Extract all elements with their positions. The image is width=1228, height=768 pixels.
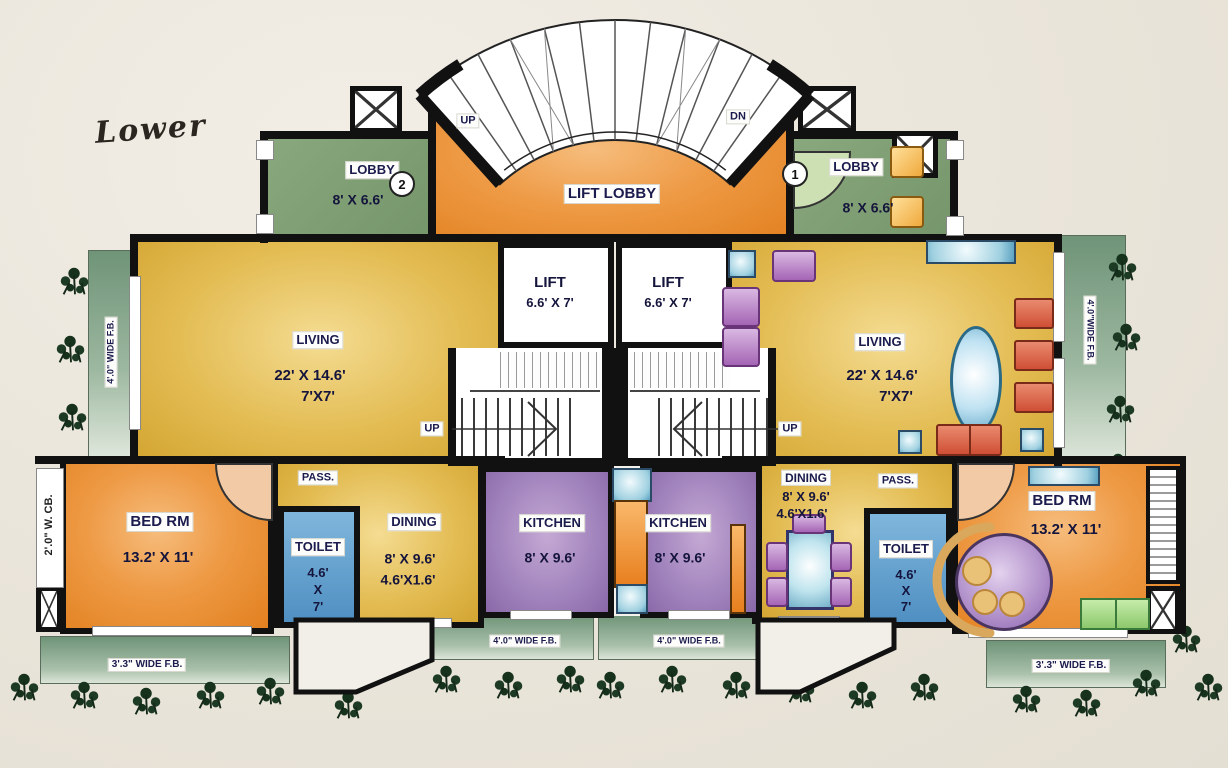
chair [722, 327, 760, 367]
window [946, 140, 964, 160]
plant-icon [782, 670, 820, 708]
side-table [1020, 428, 1044, 452]
bed-pillow [999, 591, 1025, 617]
dining-chair [766, 542, 788, 572]
plant-icon [592, 666, 630, 704]
dining-chair [830, 577, 852, 607]
floor-plan: Lower [0, 0, 1228, 768]
plant-icon [54, 398, 92, 436]
label-kitchen-left: KITCHEN [519, 514, 585, 532]
chair [1014, 340, 1054, 371]
dims-bed-right: 13.2' X 11' [1031, 522, 1102, 539]
dims-toilet-right-x: X [902, 584, 911, 598]
wall [722, 456, 1185, 464]
kitchen-sink [612, 468, 652, 502]
label-up-top: UP [456, 113, 479, 128]
dims-lift-right: 6.6' X 7' [644, 296, 691, 310]
plant-icon [1008, 680, 1046, 718]
chair [1014, 382, 1054, 413]
wall [35, 456, 505, 464]
label-up-mid-right: UP [778, 421, 801, 436]
dresser [1028, 466, 1100, 486]
dims-living-left: 22' X 14.6' [274, 368, 345, 385]
plant-icon [52, 330, 90, 368]
stair-flight-upper-right [626, 352, 730, 388]
stair-flight-upper-left [500, 352, 604, 388]
sofa [936, 424, 1002, 456]
dims-toilet-right-h: 7' [901, 600, 911, 614]
label-dining-right: DINING [781, 470, 831, 486]
kitchen-counter [614, 500, 648, 588]
label-toilet-right: TOILET [879, 540, 933, 558]
label-living-left: LIVING [292, 331, 343, 349]
dims-dining-right: 8' X 9.6' [782, 490, 829, 504]
label-balcony-bottom-center-left: 4'.0" WIDE F.B. [489, 635, 560, 648]
dims-living-right: 22' X 14.6' [846, 368, 917, 385]
label-bed-right: BED RM [1028, 491, 1095, 511]
window [92, 626, 252, 636]
dims-kitchen-left: 8' X 9.6' [524, 550, 575, 565]
plant-icon [718, 666, 756, 704]
wall [130, 234, 1062, 242]
wardrobe-right [1146, 466, 1180, 584]
flower-bed-box [798, 86, 856, 133]
label-lift-left: LIFT [534, 275, 566, 292]
dims-lobby-right: 8' X 6.6' [842, 200, 893, 215]
plant-icon [66, 676, 104, 714]
terrace-wall [296, 620, 432, 692]
dims-bed-left: 13.2' X 11' [123, 550, 194, 567]
label-balcony-right: 4'.0"WIDE F.B. [1084, 296, 1097, 365]
plant-icon [1068, 684, 1106, 722]
chair [772, 250, 816, 282]
dims2-dining-left: 4.6'X1.6' [381, 572, 436, 587]
plant-icon [1108, 318, 1146, 356]
kitchen-appliance [616, 584, 648, 614]
wall [260, 131, 434, 139]
plant-icon [330, 686, 368, 724]
room-kitchen-left [480, 466, 614, 618]
lobby-chair [890, 146, 924, 178]
label-lift-lobby: LIFT LOBBY [564, 184, 660, 204]
label-balcony-bottom-right: 3'.3" WIDE F.B. [1032, 659, 1110, 673]
dims-toilet-left-x: X [314, 583, 323, 597]
label-pass-left: PASS. [298, 470, 338, 485]
unit-number-1: 1 [782, 161, 808, 187]
window [1053, 252, 1065, 342]
dims-kitchen-right: 8' X 9.6' [654, 550, 705, 565]
bed-pillow [962, 556, 992, 586]
bench [1080, 598, 1150, 630]
room-bed-left [60, 458, 274, 634]
flower-bed-box [36, 586, 62, 632]
dims-toilet-right-w: 4.6' [895, 568, 916, 582]
wall [428, 88, 436, 242]
plant-icon [252, 672, 290, 710]
window [1053, 358, 1065, 448]
plant-icon [844, 676, 882, 714]
bench-seam [1115, 600, 1117, 628]
plant-icon [906, 668, 944, 706]
dims-lobby-left: 8' X 6.6' [332, 192, 383, 207]
label-bed-left: BED RM [126, 512, 193, 532]
label-kitchen-right: KITCHEN [645, 514, 711, 532]
kitchen-counter [730, 524, 746, 614]
plant-icon [552, 660, 590, 698]
stair-divider-wall [602, 348, 628, 460]
plant-icon [1190, 668, 1228, 706]
label-dn-top: DN [726, 109, 750, 124]
window [256, 214, 274, 234]
tv-console [926, 240, 1016, 264]
oval-table [950, 326, 1002, 434]
dims-toilet-left-h: 7' [313, 600, 323, 614]
flower-bed-box [1146, 586, 1180, 634]
dims2-living-right: 7'X7' [879, 389, 913, 406]
plant-icon [128, 682, 166, 720]
plant-icon [192, 676, 230, 714]
label-wardrobe-chajja: 2'.0" W. CB. [43, 494, 55, 555]
window [129, 276, 141, 430]
label-balcony-left: 4'.0" WIDE F.B. [105, 316, 118, 387]
label-balcony-bottom-left: 3'.3" WIDE F.B. [108, 658, 186, 672]
dims2-dining-right: 4.6'X1.6' [777, 507, 828, 521]
dining-chair [766, 577, 788, 607]
plant-icon [1102, 390, 1140, 428]
window [510, 610, 572, 620]
label-up-mid-left: UP [420, 421, 443, 436]
dining-table [786, 530, 834, 610]
label-dining-left: DINING [387, 513, 441, 531]
plant-icon [490, 666, 528, 704]
wall [768, 348, 776, 466]
dims-dining-left: 8' X 9.6' [384, 551, 435, 566]
wall [448, 348, 456, 466]
plant-icon [6, 668, 44, 706]
plant-icon [1104, 248, 1142, 286]
page-title: Lower [94, 108, 208, 151]
dims2-living-left: 7'X7' [301, 389, 335, 406]
window [778, 616, 840, 626]
plant-icon [428, 660, 466, 698]
plant-icon [1128, 664, 1166, 702]
side-table [898, 430, 922, 454]
sofa-seam [969, 426, 971, 454]
label-lift-right: LIFT [652, 275, 684, 292]
plant-icon [654, 660, 692, 698]
dims-lift-left: 6.6' X 7' [526, 296, 573, 310]
label-toilet-left: TOILET [291, 538, 345, 556]
unit-number-2: 2 [389, 171, 415, 197]
window [946, 216, 964, 236]
plant-icon [56, 262, 94, 300]
dims-toilet-left-w: 4.6' [307, 566, 328, 580]
label-lobby-right: LOBBY [829, 158, 883, 176]
chair [1014, 298, 1054, 329]
window [668, 610, 730, 620]
lobby-chair [890, 196, 924, 228]
window [256, 140, 274, 160]
dining-chair [830, 542, 852, 572]
label-living-right: LIVING [854, 333, 905, 351]
label-pass-right: PASS. [878, 473, 918, 488]
bed-pillow [972, 589, 998, 615]
flower-bed-box [350, 86, 402, 133]
chair [722, 287, 760, 327]
label-balcony-bottom-center-right: 4'.0" WIDE F.B. [653, 635, 724, 648]
stair-flight-right [658, 398, 770, 456]
side-table [728, 250, 756, 278]
stair-flight-left [461, 398, 573, 456]
window [370, 618, 452, 628]
